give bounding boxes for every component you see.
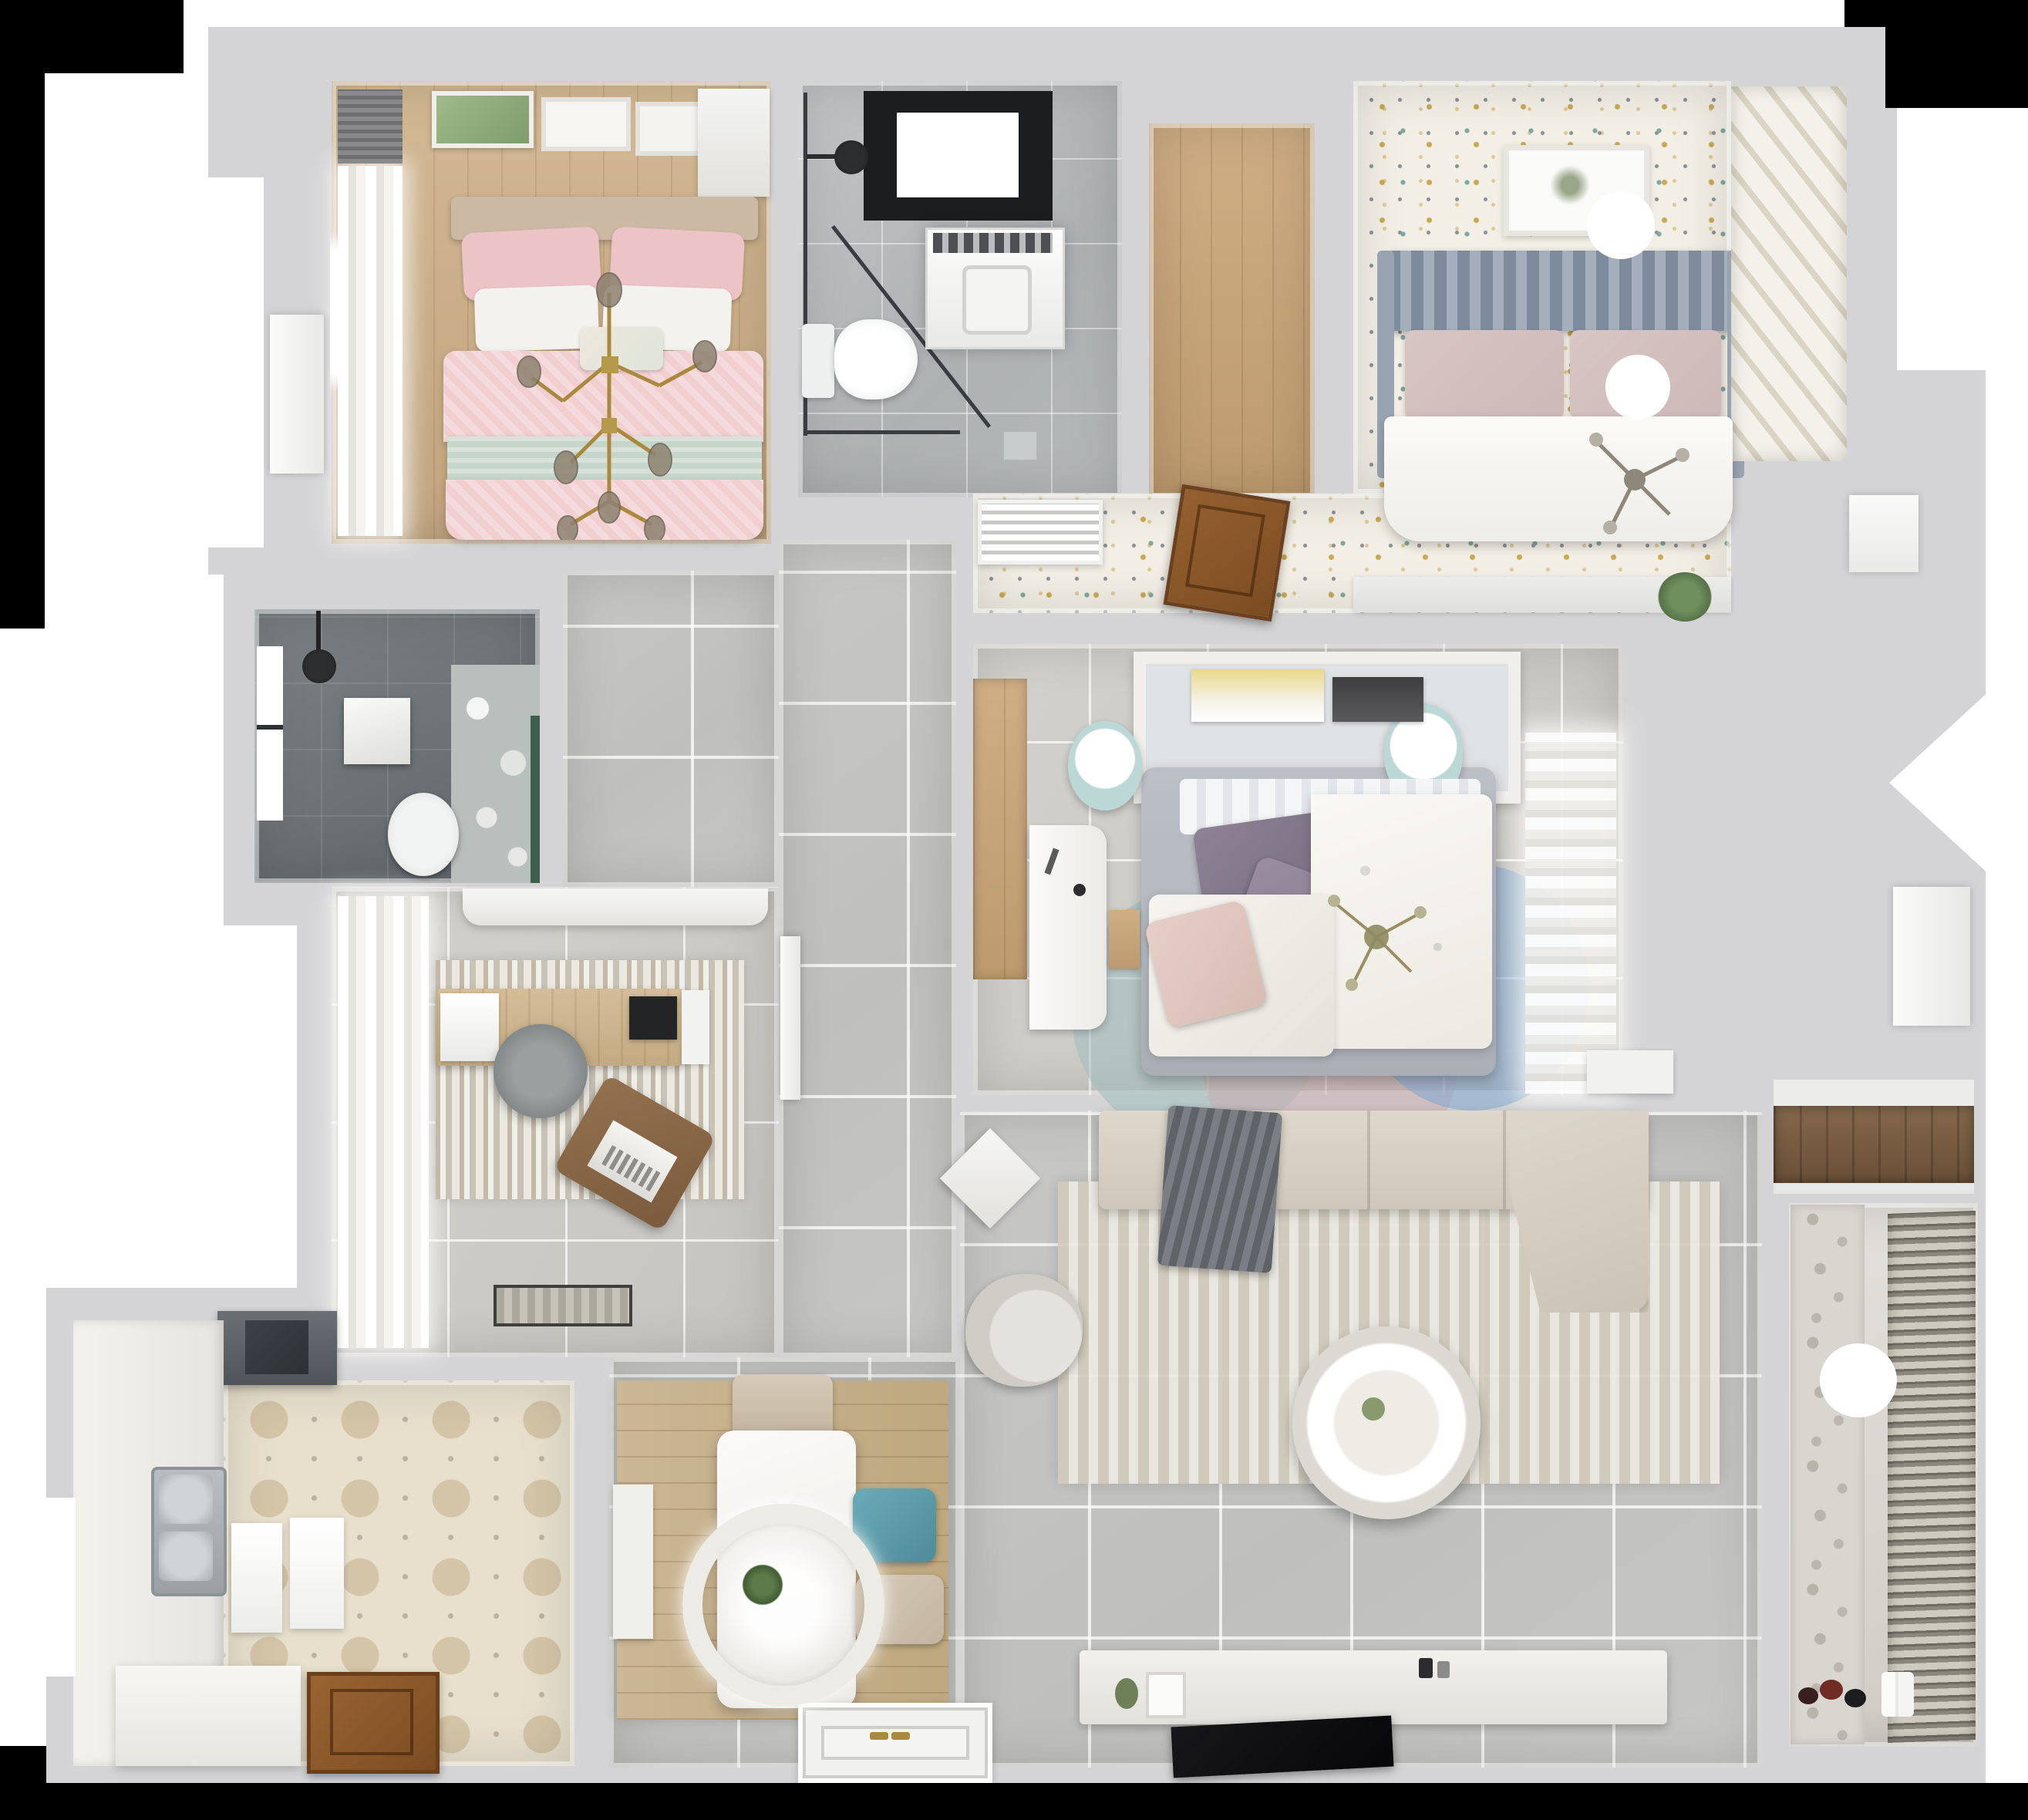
cutting-board-2 [290, 1518, 344, 1629]
white-bottles [1881, 1672, 1914, 1717]
ledge-plant [1658, 572, 1712, 622]
coffee-table-center-decor [1362, 1397, 1385, 1421]
skylight-glass [897, 113, 1019, 197]
sink-bowl-bottom [159, 1532, 213, 1581]
window-frame-dark-bath [257, 725, 283, 730]
air-vent-grille [978, 500, 1103, 565]
gold-branch-chandelier [478, 270, 740, 540]
shelf-books-dark [1332, 677, 1423, 722]
kitchen-island [116, 1666, 301, 1766]
toilet-main-tank [802, 324, 834, 398]
toilet-main-bowl [834, 319, 918, 399]
curtains-master [338, 166, 403, 536]
sink-bowl-top [159, 1475, 213, 1524]
gold-door-handle-2 [891, 1732, 910, 1740]
kids-desk-dot [1073, 884, 1086, 896]
ceiling-light-guest [1587, 191, 1655, 259]
louvered-wardrobe [1731, 86, 1847, 461]
coffee-table-outer [1292, 1326, 1481, 1519]
ball-bedside-lamp [1605, 355, 1670, 420]
sheer-curtains-kids [1525, 733, 1616, 1094]
dining-bench-left [613, 1485, 653, 1639]
door-leaf-study [780, 936, 800, 1100]
art-plant-sketch [1550, 165, 1590, 205]
study-top-cabinet [463, 888, 768, 925]
art-frame-2 [541, 97, 631, 151]
washing-machine-panel [933, 233, 1053, 253]
door-guest-bottom-right [1849, 495, 1919, 572]
crystal-chandelier [1311, 871, 1442, 1003]
shower-head-dark [302, 649, 336, 683]
venetian-blinds [1888, 1211, 1976, 1743]
wall-blind [338, 89, 403, 163]
window-dark-bath [257, 646, 283, 821]
wardrobe-door-master [698, 89, 770, 197]
floorplan-render [0, 0, 2028, 1820]
toy-2 [1820, 1680, 1843, 1700]
floor-drain [1002, 430, 1038, 461]
floor-closet-hall [1149, 123, 1315, 497]
gold-door-handle-1 [870, 1732, 888, 1740]
floor-hall-branch [563, 571, 779, 887]
nightstand-kids [1587, 1050, 1673, 1094]
doormat-study [494, 1285, 632, 1326]
floral-accent-wall [451, 665, 540, 883]
ring-chandelier-dining [682, 1504, 884, 1706]
desk-chair [494, 1024, 588, 1118]
toilet-dark-bowl [388, 793, 459, 876]
range-hood-vent [245, 1320, 308, 1374]
bg-black-left-strip [0, 73, 45, 629]
console-photo-frames [1146, 1672, 1186, 1718]
floor-hall-vertical [779, 540, 956, 1357]
kitchen-door-panel [330, 1689, 413, 1755]
wood-wardrobe-strip [973, 679, 1027, 979]
ceiling-light-balcony [1820, 1343, 1897, 1417]
shelf-books-yellow [1191, 669, 1324, 722]
storage-shelf-lip [1774, 1080, 1974, 1106]
wall-shelf-dark-bath [344, 698, 410, 764]
shower-glass-edge-h [806, 430, 960, 434]
shower-head [834, 140, 868, 174]
cutting-board-1 [231, 1523, 282, 1633]
art-frame-leaf [432, 91, 534, 148]
desk-monitor [629, 996, 677, 1040]
silver-chandelier [1565, 426, 1704, 541]
entrance-door-panel [798, 1703, 992, 1783]
kitchen-window [46, 1498, 76, 1677]
bg-black-bottom-band [0, 1783, 2028, 1820]
washing-machine-door [962, 265, 1032, 335]
toy-3 [1844, 1689, 1866, 1707]
balcony-accent-wall [1791, 1205, 1865, 1744]
kids-desk [1029, 825, 1107, 1030]
cut-left-of-master [185, 177, 264, 548]
sofa-gray-throw [1157, 1105, 1282, 1273]
shower-pipe-dark [316, 611, 321, 654]
console-decor-right-2 [1437, 1661, 1450, 1678]
chandelier-plant [742, 1564, 783, 1606]
pillow-blush-left [1405, 330, 1564, 420]
toy-1 [1798, 1687, 1818, 1704]
console-decor-right [1419, 1658, 1433, 1678]
bg-black-top-left [0, 0, 184, 73]
storage-front-lip [1774, 1183, 1974, 1194]
door-master-left [270, 315, 324, 474]
headboard-slats-guest [1388, 251, 1735, 331]
open-wood-door-panel [1185, 504, 1265, 597]
green-accent-strip [531, 716, 540, 883]
wood-drawer [1109, 910, 1140, 969]
pouf-left [1068, 721, 1142, 811]
desk-shelf-right [682, 990, 709, 1064]
armchair [965, 1274, 1083, 1387]
storage-wood [1774, 1106, 1974, 1183]
door-right-edge [1893, 887, 1970, 1026]
cut-right-of-guest [1897, 108, 1986, 370]
paper-stack [440, 993, 499, 1061]
curtains-study [338, 896, 429, 1348]
console-plant-plate [1115, 1678, 1138, 1709]
